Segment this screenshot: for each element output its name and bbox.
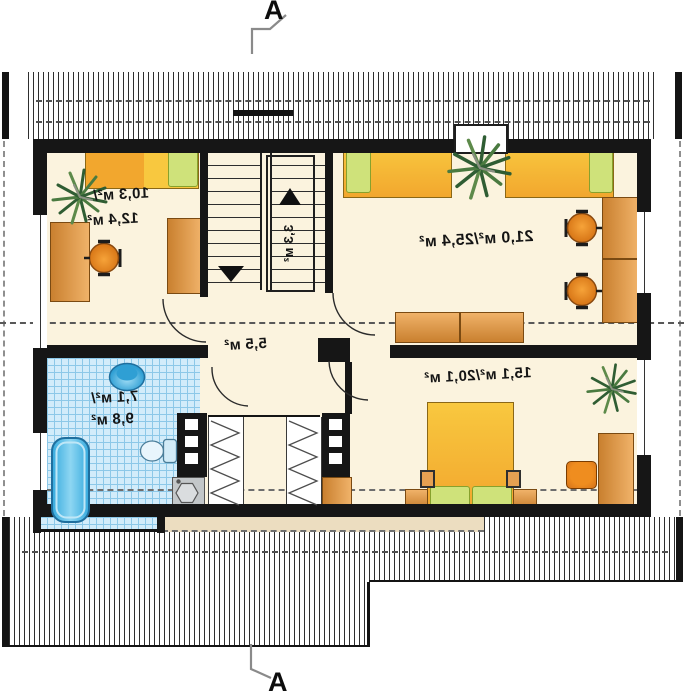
area-text: 3,3 м² [282, 224, 297, 261]
section-label-top: A [264, 0, 284, 26]
duct-opening [185, 436, 198, 447]
eaves-dash-left [3, 141, 5, 516]
wall-hall-bedroom [345, 362, 352, 414]
roof-edge-top-right [675, 72, 682, 139]
window [637, 360, 651, 455]
desk [602, 259, 639, 323]
room-label-hall: 5,5 м² [203, 336, 287, 353]
window [33, 215, 47, 348]
roof-eave-edge [369, 580, 677, 582]
wall-top [33, 139, 651, 153]
duct-opening [185, 419, 198, 430]
ridge-dash-line [0, 322, 684, 324]
roof-dash-line [36, 121, 650, 123]
duct-opening [329, 419, 342, 430]
roof-step-edge [367, 582, 370, 647]
dormer-wall [157, 517, 165, 533]
room-label-bedroom-left: 10,3 м²/ [78, 186, 164, 203]
area-text: 7,1 м²/ [91, 388, 139, 407]
area-text: 9,8 м² [90, 410, 134, 429]
roof-edge-bottom-right [676, 517, 683, 582]
room-label-large-room: 21,0 м²/25,4 м² [378, 231, 574, 249]
roof-eave-edge [9, 645, 369, 647]
wall-stair-left [200, 153, 208, 297]
section-label-bottom: A [268, 667, 288, 698]
desk [602, 197, 639, 259]
wardrobe [286, 417, 322, 510]
stairs-down-arrow [218, 266, 244, 282]
dormer-wall [33, 517, 41, 533]
window [637, 212, 651, 293]
wall-room1-bathroom [33, 345, 208, 358]
bed-corner-fold [420, 470, 435, 488]
eaves-ledge [162, 517, 484, 532]
stool [566, 461, 597, 489]
window [33, 433, 47, 490]
desk [50, 222, 90, 302]
dormer-window [40, 529, 158, 532]
room-label-stairs: 3,3 м² [276, 212, 302, 274]
floor-plan: A A [0, 0, 684, 700]
room-label-bedroom-left-2: 12,4 м² [70, 211, 156, 228]
duct-opening [185, 453, 198, 464]
roof-edge-top-left [2, 72, 9, 139]
bed-corner-fold [506, 470, 521, 488]
roof-hatch-bottom-deep [9, 582, 369, 646]
room-label-bedroom-bottom: 15,1 м²/20,1 м² [398, 367, 558, 384]
chimney [233, 110, 293, 116]
area-text: 15,1 м²/20,1 м² [424, 364, 532, 387]
area-text: 5,5 м² [223, 335, 267, 354]
dresser [395, 312, 460, 343]
area-text: 21,0 м²/25,4 м² [418, 228, 533, 252]
pillow [589, 149, 613, 193]
dresser [598, 433, 634, 506]
roof-dash-line [22, 551, 668, 553]
eaves-dash-right [679, 141, 681, 516]
duct-opening [329, 453, 342, 464]
wall-mid [390, 345, 637, 358]
wall-stair-right [325, 153, 333, 293]
dresser [167, 218, 202, 294]
duct-opening [329, 436, 342, 447]
room-label-bathroom: 7,1 м²/ [73, 389, 157, 406]
pillow [168, 147, 198, 187]
roof-edge-bottom-left [2, 517, 9, 647]
area-text: 10,3 м²/ [93, 185, 150, 205]
roof-dash-line [36, 100, 650, 102]
pillow [346, 149, 371, 193]
wall-pier [318, 338, 350, 362]
area-text: 12,4 м² [87, 210, 139, 230]
dresser [460, 312, 524, 343]
window-dormer-top [454, 124, 508, 154]
stairs-up-arrow [279, 188, 301, 205]
wardrobe [208, 417, 244, 510]
roof-hatch-top [28, 72, 655, 139]
wall-right [637, 139, 651, 517]
wall-bottom [33, 504, 651, 517]
room-label-bathroom-2: 9,8 м² [70, 411, 154, 428]
